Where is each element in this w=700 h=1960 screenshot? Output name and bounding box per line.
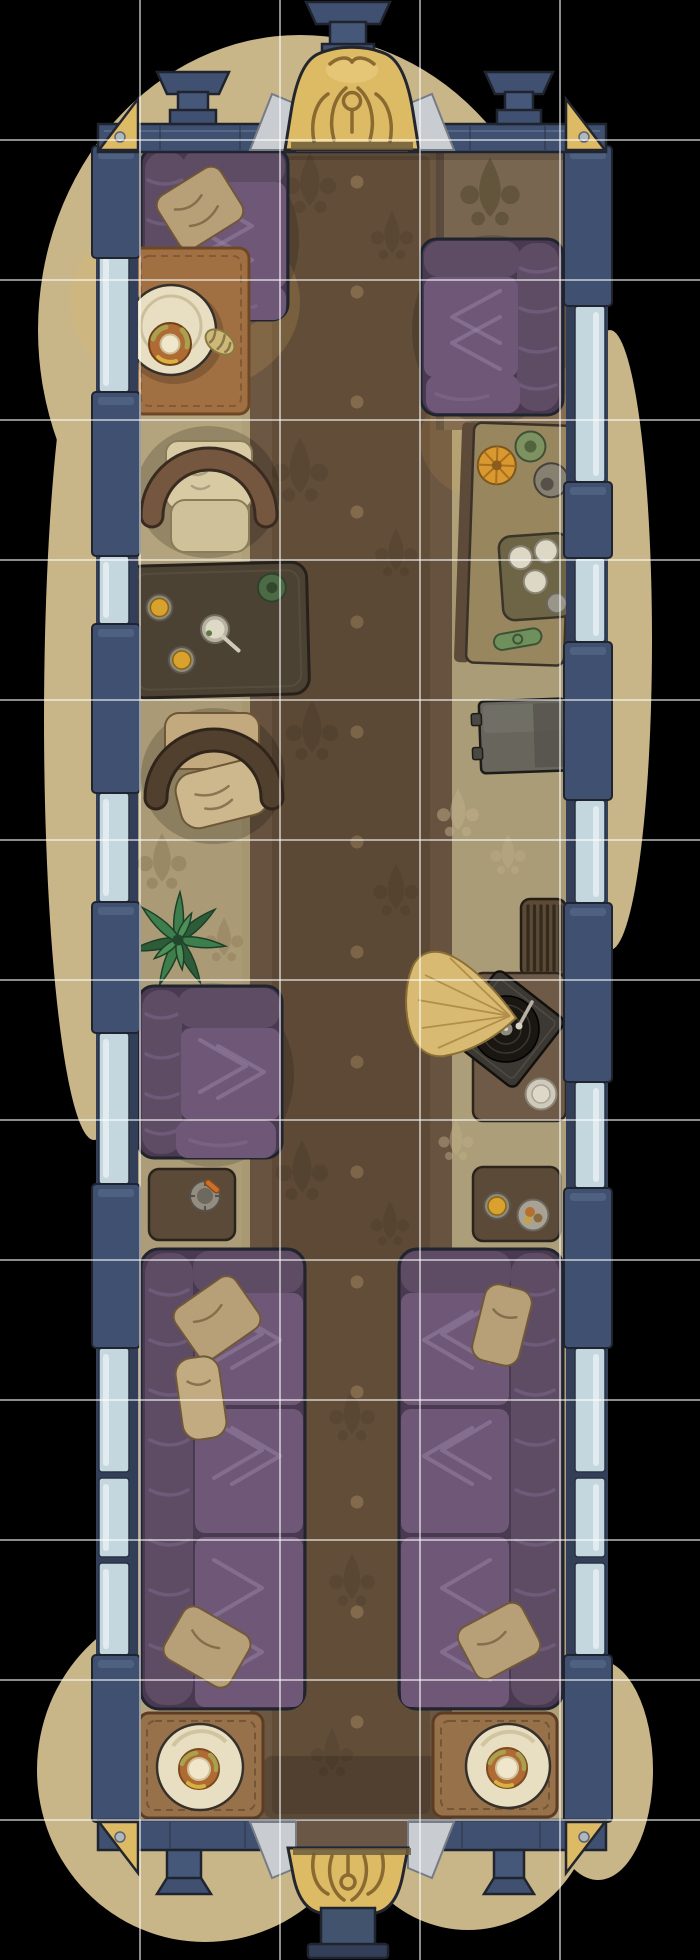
side-table-ashtray [149, 1169, 235, 1240]
wall-left [92, 146, 140, 1822]
side-table-right [473, 1167, 560, 1241]
desk-right [454, 422, 580, 666]
armchair-upper [136, 426, 280, 558]
sofa-bottom-right [399, 1249, 563, 1709]
sofa-left-middle [130, 983, 294, 1167]
cup-tray [498, 532, 574, 621]
wall-right [564, 146, 612, 1822]
sofa-top-right [412, 235, 572, 425]
coffee-table-left [126, 562, 309, 699]
battlemap-image [0, 0, 700, 1960]
coupler-pedestal-bottom [308, 1908, 388, 1958]
battlemap-stage [0, 0, 700, 1960]
amber-drink-1 [146, 594, 173, 621]
parasol [477, 446, 516, 485]
amber-drink-2 [168, 647, 195, 674]
cabinet-right [471, 698, 567, 773]
dining-table-bottom-left [139, 1713, 263, 1818]
dining-table-bottom-right [433, 1713, 557, 1817]
armchair-lower [141, 708, 285, 844]
side-table-top-left [124, 248, 249, 414]
